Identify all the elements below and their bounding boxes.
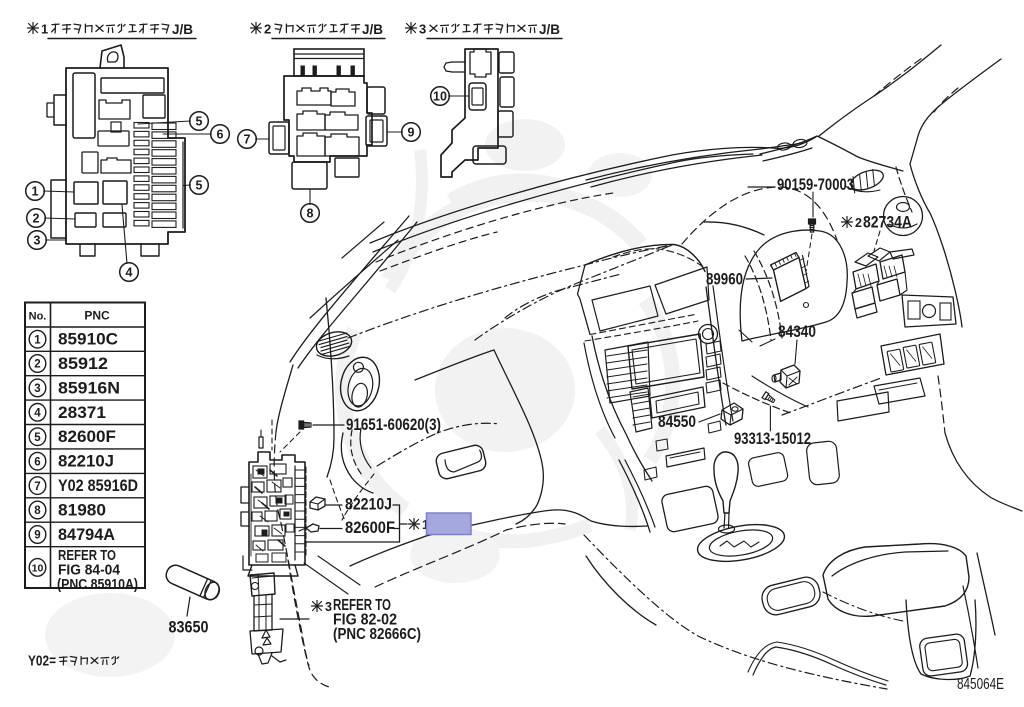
svg-text:3: 3 (34, 383, 40, 395)
svg-text:9: 9 (408, 125, 415, 139)
svg-text:81980: 81980 (58, 502, 106, 520)
svg-text:89960: 89960 (706, 270, 743, 289)
svg-text:82734A: 82734A (863, 213, 912, 232)
svg-text:5: 5 (196, 114, 203, 128)
svg-text:(PNC 82666C): (PNC 82666C) (333, 626, 421, 643)
svg-text:3: 3 (419, 22, 426, 37)
svg-text:5: 5 (34, 432, 41, 444)
svg-text:85910C: 85910C (58, 331, 118, 349)
svg-text:No.: No. (29, 311, 47, 323)
svg-text:10: 10 (32, 563, 44, 575)
svg-text:84794A: 84794A (58, 526, 115, 544)
svg-text:J/B: J/B (172, 22, 193, 37)
svg-text:85912: 85912 (58, 355, 108, 373)
svg-text:7: 7 (34, 481, 40, 493)
svg-text:J/B: J/B (362, 22, 383, 37)
svg-text:9: 9 (34, 530, 40, 542)
svg-text:90159-70003: 90159-70003 (777, 176, 854, 194)
svg-text:82210J: 82210J (58, 453, 114, 471)
svg-text:4: 4 (34, 408, 41, 420)
svg-text:2: 2 (34, 359, 40, 371)
svg-text:Y02=: Y02= (28, 654, 56, 670)
svg-text:J/B: J/B (539, 22, 560, 37)
svg-text:84340: 84340 (778, 322, 816, 341)
svg-text:91651-60620(3): 91651-60620(3) (346, 416, 441, 434)
svg-text:82210J: 82210J (345, 495, 392, 514)
svg-text:845064E: 845064E (957, 676, 1004, 693)
svg-text:2: 2 (33, 211, 40, 225)
svg-text:Y02 85916D: Y02 85916D (58, 477, 138, 495)
svg-text:(PNC 85910A): (PNC 85910A) (57, 577, 138, 593)
svg-text:5: 5 (196, 178, 203, 192)
svg-text:84550: 84550 (658, 412, 696, 431)
svg-text:1: 1 (34, 334, 41, 346)
svg-text:85916N: 85916N (58, 379, 120, 397)
svg-text:7: 7 (244, 132, 251, 146)
svg-text:8: 8 (34, 505, 41, 517)
svg-text:83650: 83650 (169, 618, 209, 637)
svg-text:6: 6 (217, 127, 224, 141)
svg-text:2: 2 (855, 216, 862, 230)
svg-text:3: 3 (325, 600, 332, 614)
svg-text:6: 6 (34, 456, 40, 468)
svg-text:PNC: PNC (84, 309, 110, 323)
svg-text:2: 2 (264, 22, 271, 37)
svg-text:82600F: 82600F (345, 518, 395, 537)
svg-text:1: 1 (32, 184, 39, 198)
svg-text:1: 1 (41, 22, 48, 37)
svg-text:10: 10 (433, 89, 447, 103)
svg-text:3: 3 (34, 233, 41, 247)
svg-text:28371: 28371 (58, 404, 106, 422)
svg-text:4: 4 (126, 265, 133, 279)
svg-text:82600F: 82600F (58, 428, 116, 446)
svg-text:93313-15012: 93313-15012 (734, 430, 811, 448)
svg-text:8: 8 (307, 206, 314, 220)
